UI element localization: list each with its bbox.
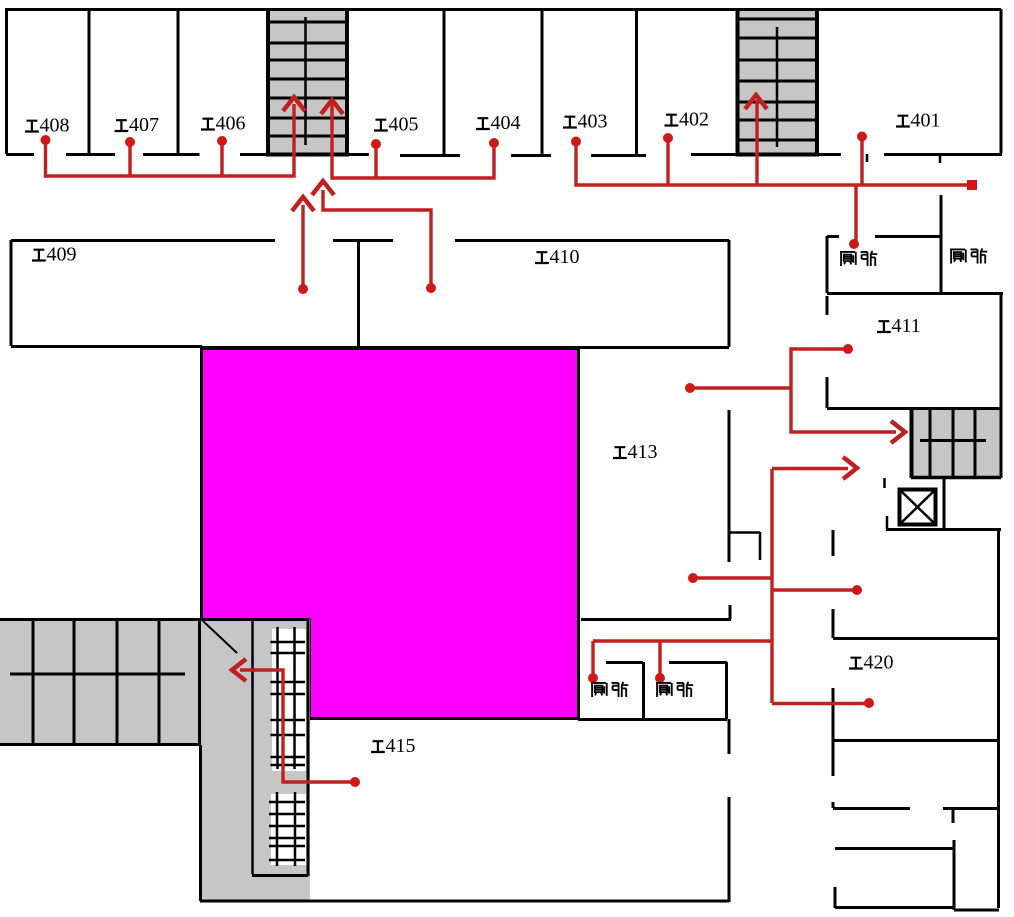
svg-text:411: 411 [892, 315, 921, 337]
svg-text:406: 406 [216, 113, 246, 135]
svg-text:420: 420 [864, 652, 894, 674]
svg-text:403: 403 [578, 111, 608, 133]
svg-text:410: 410 [550, 246, 580, 268]
svg-text:405: 405 [389, 114, 419, 136]
svg-text:413: 413 [628, 441, 658, 463]
svg-text:415: 415 [386, 735, 416, 757]
svg-text:402: 402 [679, 109, 709, 131]
svg-text:404: 404 [491, 112, 521, 134]
svg-text:407: 407 [129, 114, 159, 136]
svg-text:409: 409 [47, 244, 77, 266]
svg-text:408: 408 [40, 115, 70, 137]
svg-text:401: 401 [911, 110, 941, 132]
